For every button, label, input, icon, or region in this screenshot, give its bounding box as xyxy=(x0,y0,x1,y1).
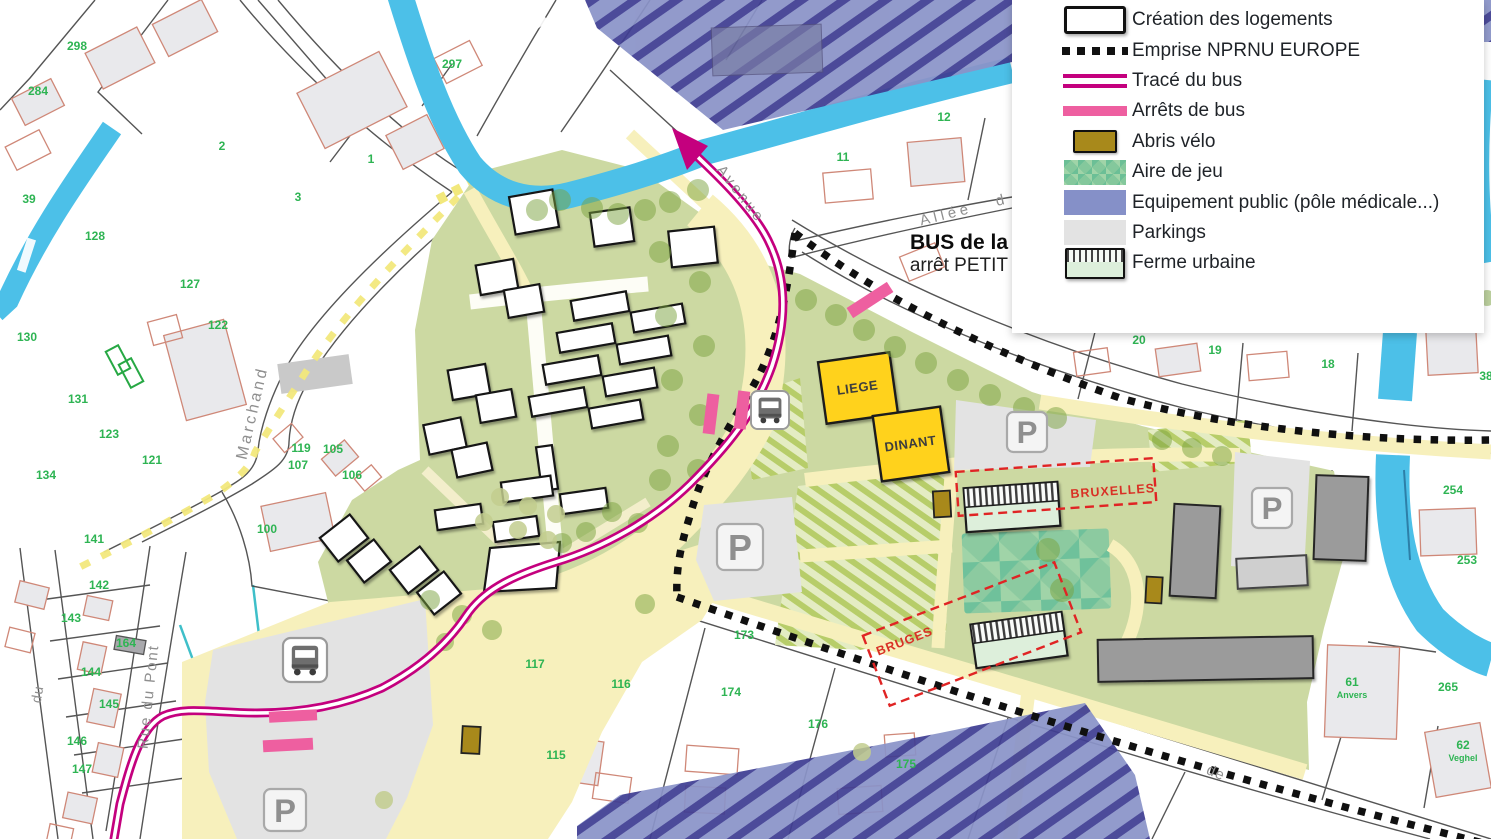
bus-stop-label: arrêt PETIT xyxy=(910,255,1009,276)
tree-icon xyxy=(482,620,502,640)
parcel-label: 62 xyxy=(1456,738,1470,752)
legend-label: Tracé du bus xyxy=(1132,70,1242,92)
legend-label: Emprise NPRNU EUROPE xyxy=(1132,40,1360,62)
tree-icon xyxy=(649,469,671,491)
tree-icon xyxy=(526,199,548,221)
parking-p-icon: P xyxy=(264,789,306,831)
legend-label: Arrêts de bus xyxy=(1132,100,1245,122)
parcel-label: 11 xyxy=(837,150,850,164)
tree-icon xyxy=(1182,438,1202,458)
tree-icon xyxy=(655,305,677,327)
bus-route-swatch-icon xyxy=(1062,74,1128,88)
parcel-label: 107 xyxy=(288,458,308,472)
tree-icon xyxy=(475,513,493,531)
tree-icon xyxy=(1036,538,1060,562)
parcel-label: 39 xyxy=(22,192,36,206)
parcel-label: 117 xyxy=(525,657,545,671)
urban-farm-building xyxy=(964,482,1061,532)
parcel-label: 2 xyxy=(219,139,226,153)
tree-icon xyxy=(519,497,537,515)
parcel-label: 131 xyxy=(68,392,88,406)
parcel-label: 176 xyxy=(808,717,828,731)
urban-plan-screenshot: PPPP 29729828421339128127122130131123121… xyxy=(0,0,1491,839)
bus-stop-swatch-icon xyxy=(1062,106,1128,116)
tree-icon xyxy=(491,488,509,506)
legend-item-logements: Création des logements xyxy=(1062,5,1484,35)
tree-icon xyxy=(1045,407,1067,429)
svg-text:P: P xyxy=(1262,491,1283,526)
tree-icon xyxy=(634,199,656,221)
parking-p-icon: P xyxy=(717,524,763,570)
parcel-label: 3 xyxy=(295,190,302,204)
tree-icon xyxy=(659,191,681,213)
tree-icon xyxy=(549,189,571,211)
legend-label: Aire de jeu xyxy=(1132,161,1223,183)
parcel-label: 175 xyxy=(896,757,916,771)
parcel-label: Veghel xyxy=(1448,753,1477,763)
tree-icon xyxy=(657,435,679,457)
tree-icon xyxy=(795,289,817,311)
parcel-label: 146 xyxy=(67,734,87,748)
parking-p-icon: P xyxy=(1007,412,1047,452)
tree-icon xyxy=(539,531,557,549)
parcel-label: 174 xyxy=(721,685,741,699)
parcel-label: 19 xyxy=(1208,343,1222,357)
legend-item-trace-bus: Tracé du bus xyxy=(1062,66,1484,96)
tree-icon xyxy=(509,521,527,539)
tree-icon xyxy=(607,203,629,225)
tree-icon xyxy=(687,179,709,201)
parcel-label: 143 xyxy=(61,611,81,625)
tree-icon xyxy=(581,197,603,219)
tree-icon xyxy=(1152,430,1172,450)
parcel-label: 38 xyxy=(1479,369,1491,383)
parcel-label: 254 xyxy=(1443,483,1463,497)
parcel-label: 265 xyxy=(1438,680,1458,694)
playground-area xyxy=(962,528,1112,613)
tree-icon xyxy=(693,335,715,357)
parcel-label: 119 xyxy=(291,441,311,455)
parcel-label: 130 xyxy=(17,330,37,344)
parcel-label: 1 xyxy=(368,152,375,166)
tree-icon xyxy=(853,743,871,761)
tree-icon xyxy=(884,336,906,358)
parcel-label: 173 xyxy=(734,628,754,642)
legend-item-ferme: Ferme urbaine xyxy=(1062,248,1484,278)
parcel-label: 128 xyxy=(85,229,105,243)
legend-label: Abris vélo xyxy=(1132,131,1215,153)
parcel-label: 20 xyxy=(1132,333,1146,347)
tree-icon xyxy=(947,369,969,391)
parcel-label: 106 xyxy=(342,468,362,482)
public-equipment-swatch-icon xyxy=(1062,190,1128,215)
parcel-label: 298 xyxy=(67,39,87,53)
bike-shelter-swatch-icon xyxy=(1062,130,1128,153)
tree-icon xyxy=(1212,446,1232,466)
svg-text:P: P xyxy=(274,792,296,829)
tree-icon xyxy=(576,522,596,542)
bus-line-label: BUS de la xyxy=(910,231,1008,254)
tree-icon xyxy=(420,590,440,610)
parcel-label: 123 xyxy=(99,427,119,441)
tree-icon xyxy=(375,791,393,809)
parcel-label: 122 xyxy=(208,318,228,332)
parcel-label: 141 xyxy=(84,532,104,546)
parcel-label: 144 xyxy=(81,665,101,679)
parcel-label: 121 xyxy=(142,453,162,467)
legend-panel: Création des logements Emprise NPRNU EUR… xyxy=(1012,0,1484,333)
nprnu-swatch-icon xyxy=(1062,47,1128,55)
svg-text:P: P xyxy=(728,528,752,568)
parcel-label: 134 xyxy=(36,468,56,482)
tree-icon xyxy=(635,594,655,614)
parcel-label: 100 xyxy=(257,522,277,536)
legend-item-arrets-bus: Arrêts de bus xyxy=(1062,96,1484,126)
parcel-label: 253 xyxy=(1457,553,1477,567)
parcel-label: 147 xyxy=(72,762,92,776)
legend-item-abris-velo: Abris vélo xyxy=(1062,127,1484,157)
legend-item-aire-jeu: Aire de jeu xyxy=(1062,157,1484,187)
parcel-label: 164 xyxy=(116,636,136,650)
tree-icon xyxy=(602,502,622,522)
parcel-label: 61 xyxy=(1345,675,1359,689)
urban-farm-swatch-icon xyxy=(1062,248,1128,279)
legend-item-equipement: Equipement public (pôle médicale...) xyxy=(1062,187,1484,217)
tree-icon xyxy=(689,271,711,293)
parcel-label: Anvers xyxy=(1337,690,1368,700)
tree-icon xyxy=(649,241,671,263)
parcel-label: 115 xyxy=(546,748,566,762)
legend-item-nprnu: Emprise NPRNU EUROPE xyxy=(1062,35,1484,65)
svg-text:P: P xyxy=(1017,415,1038,450)
tree-icon xyxy=(825,304,847,326)
logements-swatch-icon xyxy=(1062,6,1128,34)
parking-swatch-icon xyxy=(1062,220,1128,245)
legend-item-parkings: Parkings xyxy=(1062,218,1484,248)
playground-swatch-icon xyxy=(1062,160,1128,185)
tree-icon xyxy=(661,369,683,391)
tree-icon xyxy=(853,319,875,341)
parcel-label: 145 xyxy=(99,697,119,711)
parking-p-icon: P xyxy=(1252,488,1292,528)
legend-label: Equipement public (pôle médicale...) xyxy=(1132,192,1439,214)
parcel-label: 18 xyxy=(1321,357,1335,371)
parcel-label: 116 xyxy=(611,677,631,691)
parcel-label: 105 xyxy=(323,442,343,456)
parcel-label: 12 xyxy=(937,110,951,124)
tree-icon xyxy=(979,384,1001,406)
legend-label: Parkings xyxy=(1132,222,1206,244)
legend-label: Ferme urbaine xyxy=(1132,252,1256,274)
parcel-label: 142 xyxy=(89,578,109,592)
parcel-label: 127 xyxy=(180,277,200,291)
parcel-label: 297 xyxy=(442,57,462,71)
legend-label: Création des logements xyxy=(1132,9,1333,31)
parcel-label: 284 xyxy=(28,84,48,98)
tree-icon xyxy=(915,352,937,374)
tree-icon xyxy=(547,505,565,523)
street-label: du xyxy=(28,684,47,704)
